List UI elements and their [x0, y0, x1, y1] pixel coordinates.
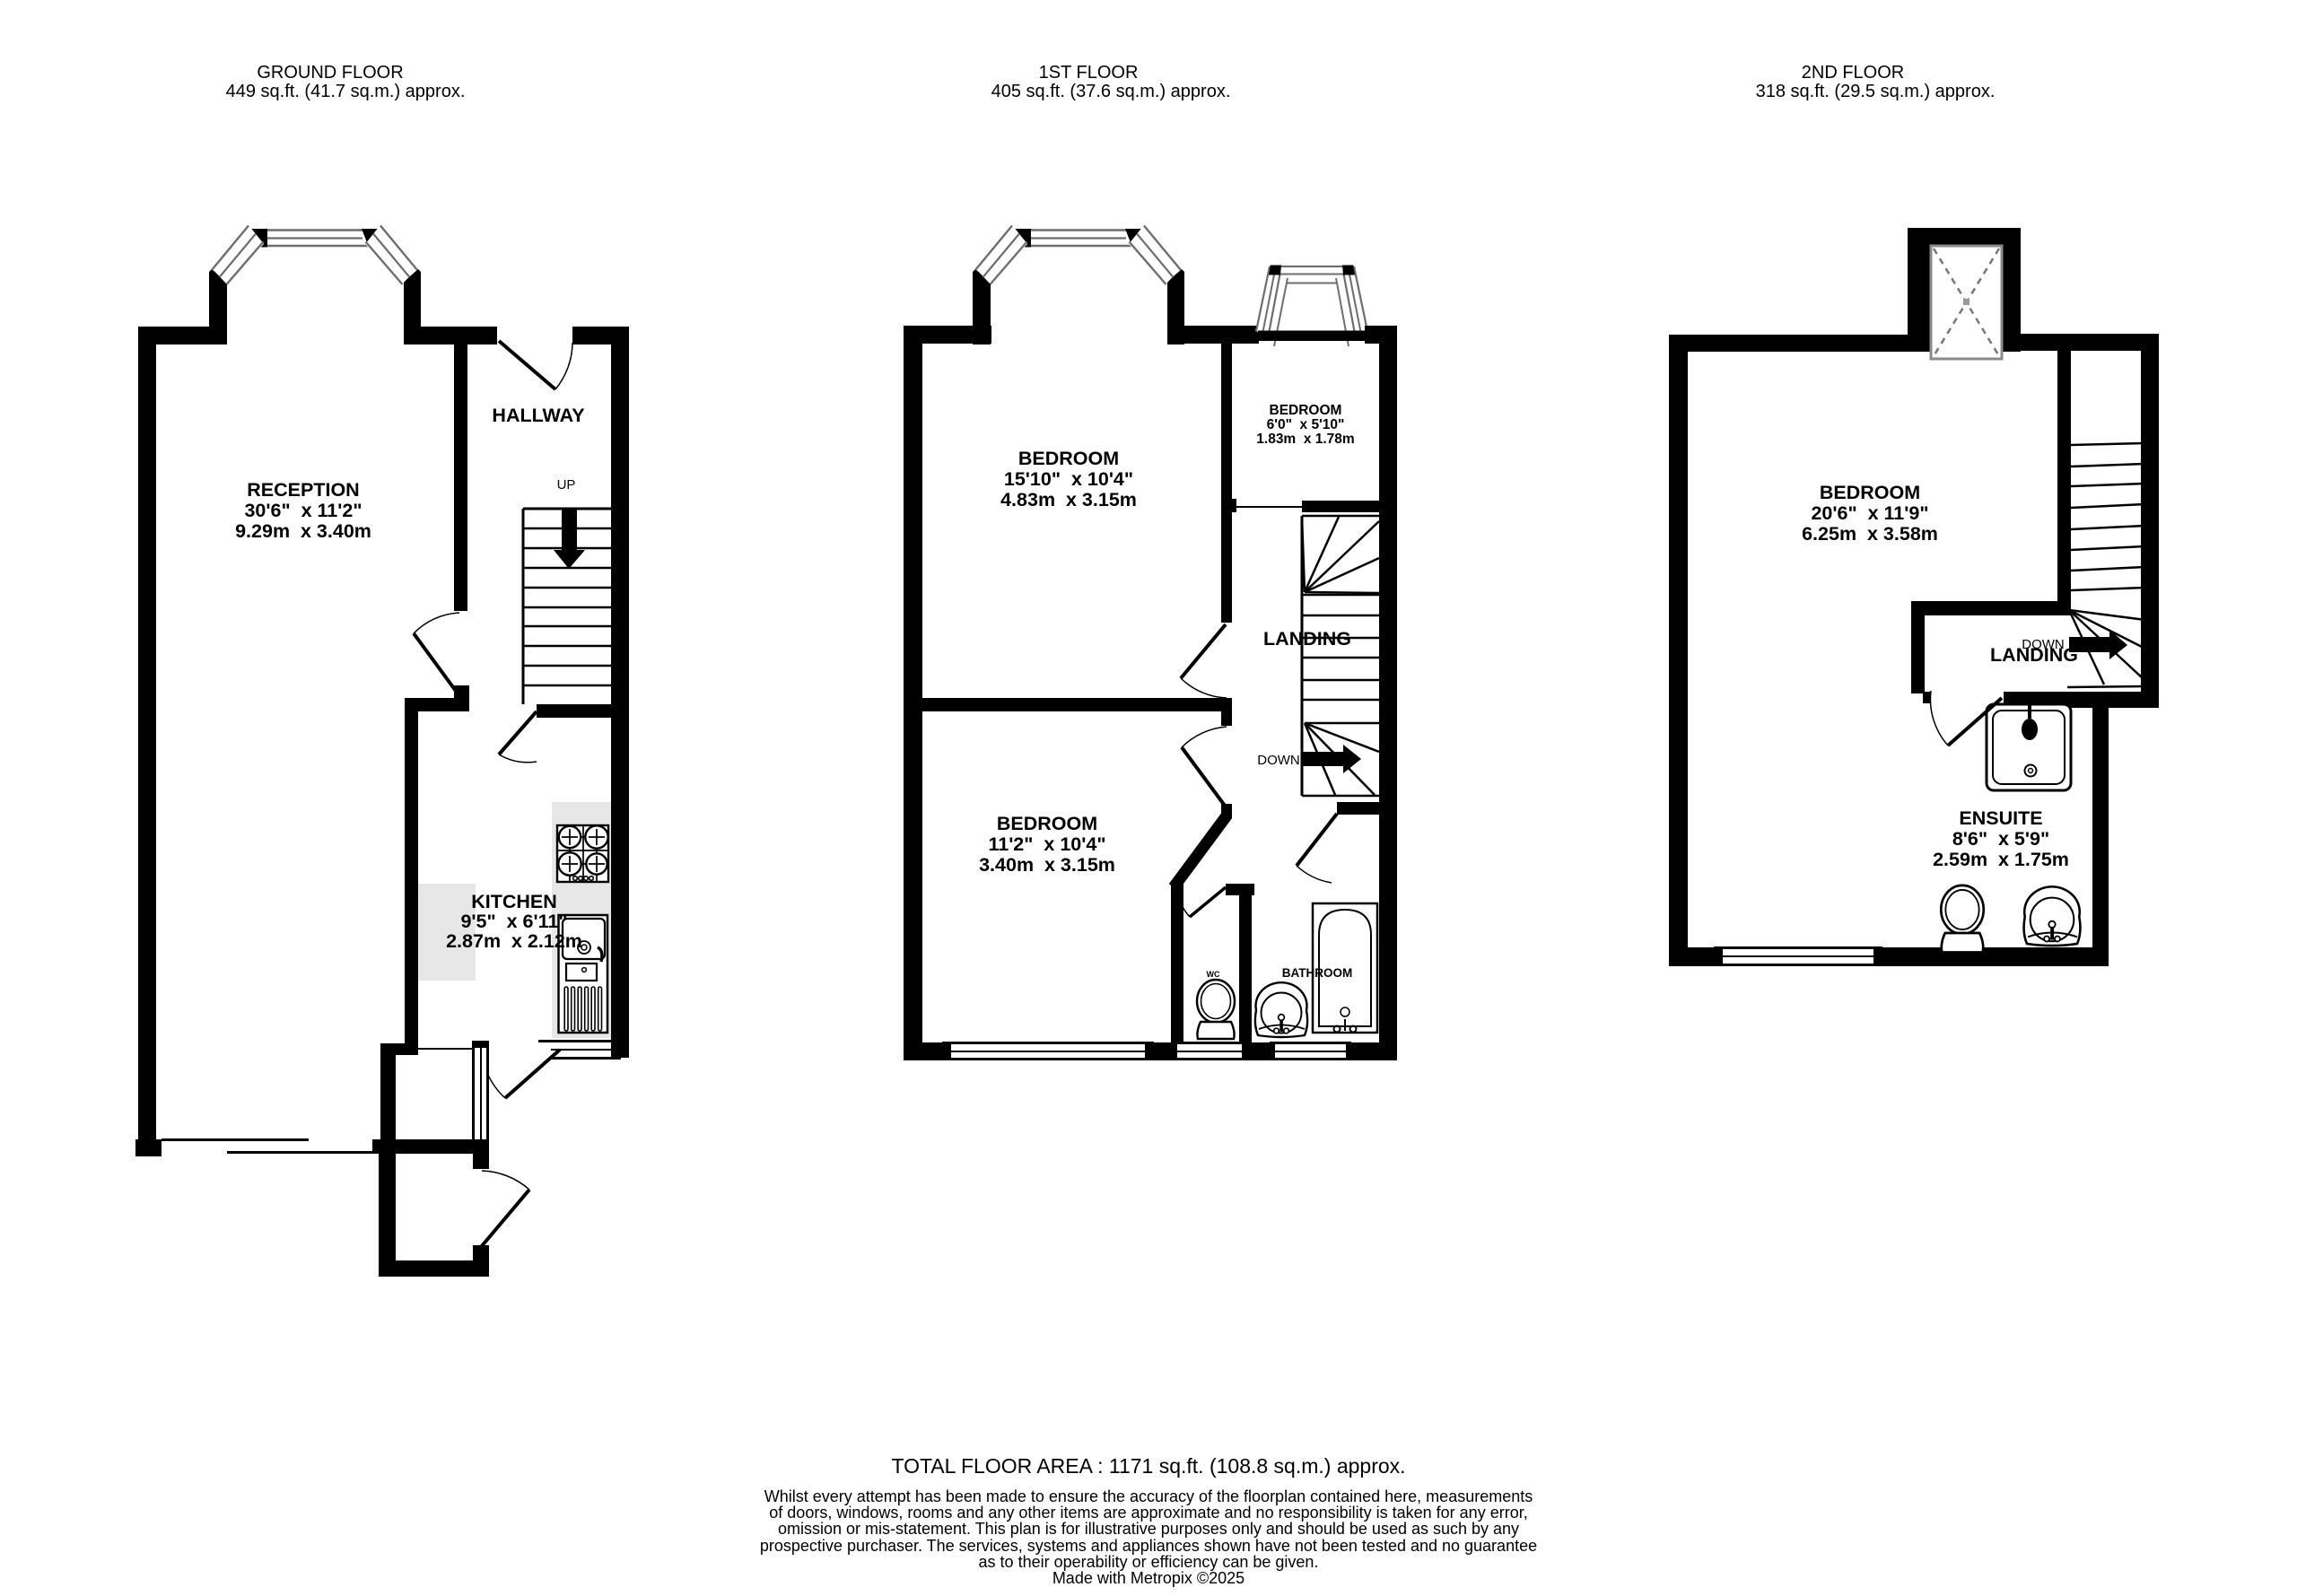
svg-text:9'5" x 6'11": 9'5" x 6'11" — [460, 911, 567, 932]
svg-text:omission or mis-statement. Thi: omission or mis-statement. This plan is … — [778, 1520, 1519, 1538]
svg-text:1ST FLOOR: 1ST FLOOR — [1039, 63, 1139, 83]
svg-text:TOTAL FLOOR AREA : 1171 sq.ft.: TOTAL FLOOR AREA : 1171 sq.ft. (108.8 sq… — [891, 1454, 1405, 1478]
svg-text:Whilst every attempt has been: Whilst every attempt has been made to en… — [764, 1487, 1533, 1505]
svg-text:DOWN: DOWN — [1257, 753, 1300, 768]
svg-text:9.29m x 3.40m: 9.29m x 3.40m — [235, 520, 371, 542]
svg-text:2.59m x 1.75m: 2.59m x 1.75m — [1933, 849, 2069, 870]
svg-text:UP: UP — [557, 477, 576, 493]
svg-text:BEDROOM: BEDROOM — [1820, 482, 1920, 503]
svg-text:of doors, windows, rooms and a: of doors, windows, rooms and any other i… — [769, 1504, 1527, 1522]
svg-text:6.25m x 3.58m: 6.25m x 3.58m — [1802, 523, 1938, 545]
svg-text:ENSUITE: ENSUITE — [1959, 807, 2042, 829]
svg-text:LANDING: LANDING — [1990, 644, 2078, 666]
svg-text:BEDROOM: BEDROOM — [1270, 403, 1342, 418]
svg-text:2.87m x 2.12m: 2.87m x 2.12m — [446, 930, 582, 952]
svg-text:8'6" x 5'9": 8'6" x 5'9" — [1952, 828, 2049, 850]
svg-text:15'10" x 10'4": 15'10" x 10'4" — [1004, 468, 1133, 490]
svg-text:BEDROOM: BEDROOM — [1018, 448, 1119, 469]
svg-text:RECEPTION: RECEPTION — [247, 479, 359, 501]
svg-text:20'6" x 11'9": 20'6" x 11'9" — [1811, 502, 1928, 524]
svg-text:3.40m x 3.15m: 3.40m x 3.15m — [979, 854, 1115, 876]
svg-text:BEDROOM: BEDROOM — [997, 813, 1097, 834]
svg-text:KITCHEN: KITCHEN — [471, 891, 557, 912]
svg-text:318 sq.ft. (29.5 sq.m.) approx: 318 sq.ft. (29.5 sq.m.) approx. — [1756, 82, 1996, 101]
svg-text:HALLWAY: HALLWAY — [492, 405, 584, 426]
svg-text:6'0" x 5'10": 6'0" x 5'10" — [1267, 417, 1345, 432]
svg-text:BATHROOM: BATHROOM — [1282, 966, 1353, 980]
svg-text:4.83m x 3.15m: 4.83m x 3.15m — [1000, 489, 1137, 510]
svg-text:WC: WC — [1207, 970, 1220, 979]
svg-text:prospective purchaser. The ser: prospective purchaser. The services, sys… — [760, 1537, 1537, 1555]
svg-text:LANDING: LANDING — [1263, 628, 1351, 650]
svg-text:30'6" x 11'2": 30'6" x 11'2" — [244, 500, 362, 521]
svg-text:2ND FLOOR: 2ND FLOOR — [1802, 63, 1904, 83]
svg-text:Made with Metropix ©2025: Made with Metropix ©2025 — [1052, 1569, 1245, 1587]
svg-text:449 sq.ft. (41.7 sq.m.) approx: 449 sq.ft. (41.7 sq.m.) approx. — [226, 82, 466, 101]
svg-text:405 sq.ft. (37.6 sq.m.) approx: 405 sq.ft. (37.6 sq.m.) approx. — [991, 82, 1231, 101]
svg-text:1.83m x 1.78m: 1.83m x 1.78m — [1256, 432, 1354, 447]
svg-text:as to their operability or eff: as to their operability or efficiency ca… — [979, 1553, 1319, 1571]
svg-text:GROUND FLOOR: GROUND FLOOR — [257, 63, 403, 83]
svg-text:11'2" x 10'4": 11'2" x 10'4" — [988, 833, 1105, 855]
